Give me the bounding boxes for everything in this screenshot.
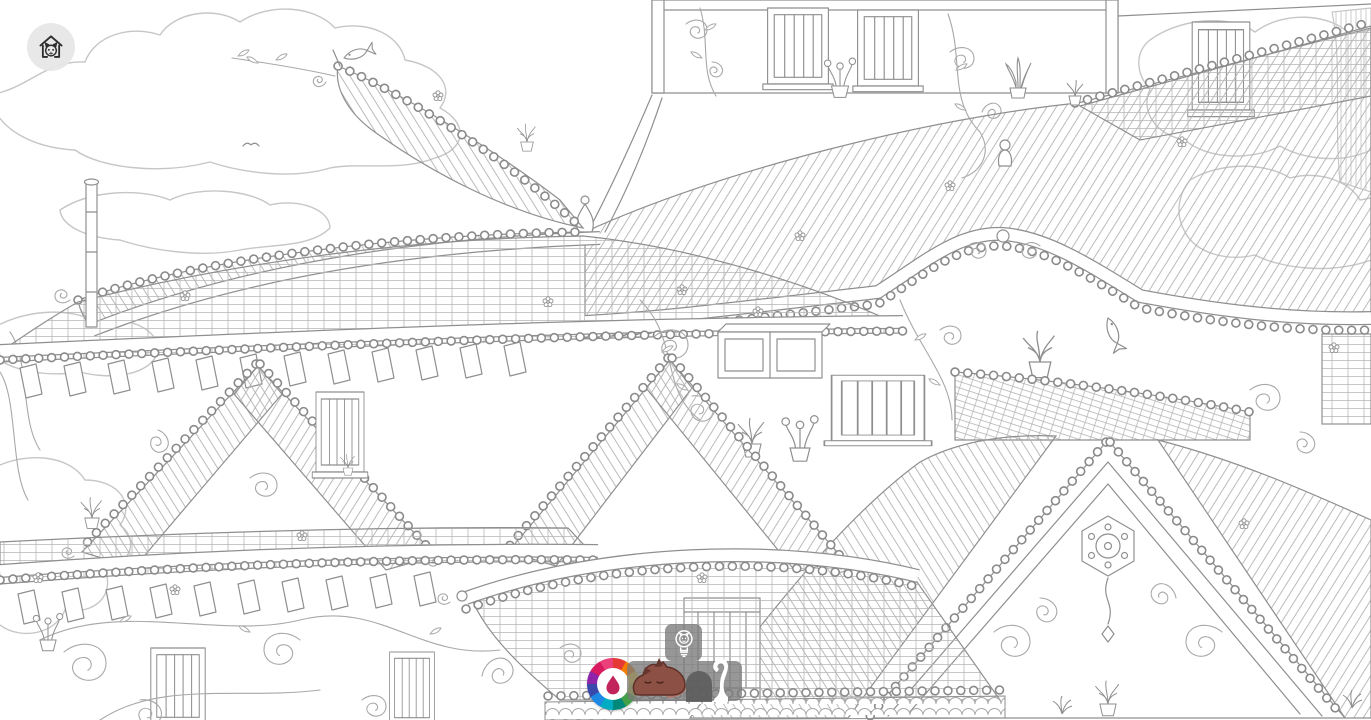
home-button[interactable] [27,23,75,71]
roof-figurine[interactable] [998,140,1011,166]
shuttered-window[interactable] [718,324,830,378]
found-cat-sleeping [629,654,691,702]
slatted-window[interactable] [312,392,368,478]
color-wheel-center [597,668,629,700]
slatted-window[interactable] [147,648,210,720]
slatted-window[interactable] [763,8,833,90]
paint-drop-icon [603,673,623,695]
slatted-window[interactable] [853,10,923,92]
slatted-window[interactable] [824,375,931,446]
line-art-illustration[interactable] [0,0,1371,720]
potted-plant[interactable] [1023,331,1054,378]
slatted-window[interactable] [386,652,438,720]
found-cats-bar [627,661,742,701]
hidden-cat-tail-silhouette [709,652,735,704]
ridge-plant[interactable] [517,124,535,151]
cat-house-icon [34,30,68,64]
coloring-canvas[interactable] [0,0,1371,720]
fish-ornament[interactable] [1101,316,1126,354]
flower-pot[interactable] [782,416,818,462]
